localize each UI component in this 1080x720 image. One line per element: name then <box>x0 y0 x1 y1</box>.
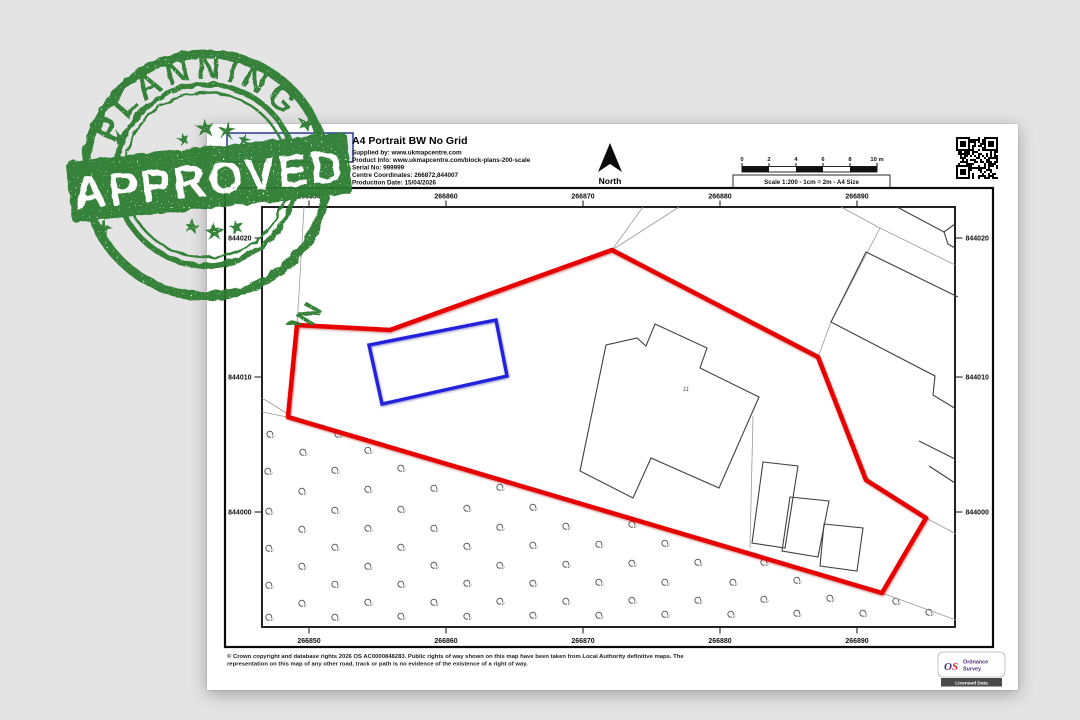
qr-module <box>966 161 968 163</box>
qr-module <box>990 149 992 151</box>
qr-module <box>956 145 958 147</box>
qr-module <box>968 177 970 179</box>
qr-module <box>970 155 972 157</box>
qr-module <box>996 155 998 157</box>
scale-segment <box>742 167 769 173</box>
qr-module <box>960 161 962 163</box>
qr-module <box>956 147 958 149</box>
qr-module <box>988 163 990 165</box>
star-icon <box>217 120 238 140</box>
qr-module <box>972 173 974 175</box>
qr-module <box>974 161 976 163</box>
qr-module <box>996 159 998 161</box>
northing-label: 844000 <box>228 510 251 517</box>
scrub-icon <box>299 600 307 607</box>
northing-label: 844010 <box>966 375 989 382</box>
qr-module <box>968 149 970 151</box>
scrub-icon <box>464 543 472 550</box>
qr-module <box>968 163 970 165</box>
qr-module <box>990 163 992 165</box>
qr-module <box>996 143 998 145</box>
qr-module <box>992 165 994 167</box>
scrub-icon <box>794 610 802 617</box>
qr-module <box>968 153 970 155</box>
qr-module <box>986 153 988 155</box>
scale-tick-label: 8 <box>848 157 852 163</box>
qr-module <box>974 159 976 161</box>
qr-module <box>960 153 962 155</box>
qr-module <box>990 153 992 155</box>
qr-module <box>978 157 980 159</box>
qr-module <box>978 165 980 167</box>
qr-module <box>984 147 986 149</box>
qr-module <box>970 139 972 141</box>
qr-module <box>966 155 968 157</box>
qr-module <box>970 163 972 165</box>
neighbour-building-e-2 <box>929 466 955 483</box>
scrub-icon <box>464 613 472 620</box>
qr-module <box>982 141 984 143</box>
star-icon <box>195 117 216 137</box>
outbuilding-1 <box>752 462 798 548</box>
qr-module <box>964 149 966 151</box>
os-name-line1: Ordnance <box>963 660 988 666</box>
scrub-icon <box>266 545 274 552</box>
qr-module <box>970 141 972 143</box>
qr-module <box>986 149 988 151</box>
qr-module <box>978 177 980 179</box>
scrub-icon <box>860 610 868 617</box>
qr-module <box>980 175 982 177</box>
qr-module <box>988 161 990 163</box>
scrub-icon <box>365 563 373 570</box>
scrub-icon <box>332 544 340 551</box>
qr-module <box>962 159 964 161</box>
scrub-icon <box>497 524 505 531</box>
qr-module <box>972 141 974 143</box>
scale-tick-label: 2 <box>767 157 770 163</box>
qr-module <box>990 137 992 139</box>
qr-module <box>982 139 984 141</box>
easting-label: 266880 <box>708 194 731 201</box>
qr-module <box>988 165 990 167</box>
scrub-icon <box>728 611 736 618</box>
qr-module <box>972 145 974 147</box>
parcel-line-right-2 <box>882 593 956 620</box>
qr-module <box>956 141 958 143</box>
qr-module <box>966 153 968 155</box>
copyright-line-2: representation on this map of any other … <box>227 662 528 668</box>
neighbour-building-e-1 <box>919 441 955 459</box>
scrub-icon <box>332 507 340 514</box>
qr-module <box>974 139 976 141</box>
qr-module <box>964 151 966 153</box>
qr-module <box>968 145 970 147</box>
star-icon <box>227 218 245 235</box>
easting-label: 266860 <box>434 194 457 201</box>
qr-module <box>978 167 980 169</box>
north-label: North <box>599 176 622 186</box>
qr-module <box>972 147 974 149</box>
qr-module <box>996 151 998 153</box>
os-name-line2: Survey <box>963 667 981 673</box>
qr-module <box>968 147 970 149</box>
scale-tick-label: 6 <box>821 157 825 163</box>
header-product-info: Product Info: www.ukmapcentre.com/block-… <box>352 157 531 164</box>
qr-module <box>966 165 968 167</box>
qr-module <box>972 151 974 153</box>
scrub-icon <box>332 614 340 621</box>
qr-module <box>962 161 964 163</box>
qr-module <box>960 137 962 139</box>
stamp-banner: APPROVED <box>66 132 353 222</box>
qr-module <box>984 145 986 147</box>
scrub-icon <box>266 614 274 621</box>
qr-module <box>990 175 992 177</box>
qr-module <box>964 177 966 179</box>
easting-label: 266880 <box>708 638 731 645</box>
qr-module <box>968 141 970 143</box>
qr-module <box>968 173 970 175</box>
qr-module <box>958 149 960 151</box>
qr-module <box>996 161 998 163</box>
qr-module <box>988 175 990 177</box>
scale-segment <box>796 167 823 173</box>
qr-module <box>984 137 986 139</box>
qr-module <box>996 145 998 147</box>
qr-module <box>966 137 968 139</box>
qr-module <box>960 143 962 145</box>
qr-module <box>970 167 972 169</box>
header: A4 Portrait BW No Grid Supplied by: www.… <box>352 135 531 187</box>
scrub-icon <box>365 525 373 532</box>
footer: © Crown copyright and database rights 20… <box>227 652 1005 687</box>
qr-module <box>956 143 958 145</box>
qr-module <box>966 149 968 151</box>
site-boundary-red <box>288 250 926 593</box>
qr-module <box>992 145 994 147</box>
qr-module <box>956 175 958 177</box>
qr-module <box>986 137 988 139</box>
qr-module <box>960 177 962 179</box>
qr-module <box>994 153 996 155</box>
qr-module <box>994 155 996 157</box>
qr-module <box>964 171 966 173</box>
qr-module <box>968 137 970 139</box>
scrub-icon <box>596 541 604 548</box>
fence-line-outbuildings <box>750 416 753 548</box>
qr-module <box>992 141 994 143</box>
qr-module <box>978 145 980 147</box>
scrub-icon <box>464 580 472 587</box>
qr-module <box>962 169 964 171</box>
scrub-icon <box>530 612 538 619</box>
qr-module <box>972 149 974 151</box>
qr-module <box>984 171 986 173</box>
northing-label: 844010 <box>228 375 251 382</box>
qr-module <box>964 157 966 159</box>
qr-module <box>958 165 960 167</box>
qr-module <box>984 167 986 169</box>
ordnance-survey-logo: OS Ordnance Survey Licensed Data <box>938 652 1005 687</box>
qr-module <box>990 151 992 153</box>
copyright-line-1: © Crown copyright and database rights 20… <box>227 653 684 660</box>
qr-module <box>972 139 974 141</box>
scale-bar: Scale 1:200 - 1cm = 2m - A4 Size 0246810… <box>733 157 890 188</box>
qr-module <box>962 149 964 151</box>
scrub-icon <box>761 596 769 603</box>
scrub-icon <box>398 544 406 551</box>
scrub-icon <box>299 526 307 533</box>
qr-module <box>982 161 984 163</box>
easting-label: 266860 <box>434 638 457 645</box>
track-edge-2 <box>612 207 679 250</box>
scrub-icon <box>365 486 373 493</box>
scrub-icon <box>629 560 637 567</box>
qr-module <box>996 177 998 179</box>
scrub-icon <box>299 488 307 495</box>
qr-module <box>994 157 996 159</box>
qr-module <box>968 151 970 153</box>
qr-module <box>990 155 992 157</box>
qr-module <box>980 143 982 145</box>
outbuilding-3 <box>820 524 863 571</box>
qr-module <box>964 137 966 139</box>
qr-module <box>960 155 962 157</box>
qr-module <box>988 149 990 151</box>
qr-module <box>974 167 976 169</box>
qr-module <box>978 137 980 139</box>
qr-module <box>964 153 966 155</box>
north-arrow: North <box>598 143 622 186</box>
qr-module <box>980 161 982 163</box>
easting-label: 266890 <box>845 194 868 201</box>
qr-module <box>978 139 980 141</box>
qr-module <box>964 155 966 157</box>
scale-segment <box>769 167 796 173</box>
os-logo-icon: OS <box>944 661 958 673</box>
qr-module <box>988 173 990 175</box>
qr-module <box>990 161 992 163</box>
scrub-icon <box>497 484 505 491</box>
qr-module <box>956 165 958 167</box>
qr-module <box>996 137 998 139</box>
qr-module <box>978 155 980 157</box>
scrub-icon <box>794 577 802 584</box>
qr-module <box>990 165 992 167</box>
qr-module <box>974 145 976 147</box>
qr-module <box>984 177 986 179</box>
qr-module <box>986 177 988 179</box>
qr-module <box>960 171 962 173</box>
qr-module <box>978 153 980 155</box>
scrub-icon <box>563 598 571 605</box>
scrub-icon <box>497 598 505 605</box>
scrub-icon <box>266 508 274 515</box>
neighbour-building-ne <box>831 252 958 409</box>
qr-module <box>976 139 978 141</box>
scrub-icon <box>530 580 538 587</box>
qr-module <box>958 177 960 179</box>
scrub-icon <box>398 581 406 588</box>
scale-tick-label: 4 <box>794 157 798 163</box>
scrub-icon <box>662 540 670 547</box>
qr-module <box>968 139 970 141</box>
qr-module <box>996 139 998 141</box>
scrub-icon <box>563 523 571 530</box>
qr-module <box>970 165 972 167</box>
qr-module <box>962 157 964 159</box>
qr-module <box>988 137 990 139</box>
qr-module <box>960 151 962 153</box>
scrub-icon <box>662 611 670 618</box>
qr-module <box>996 149 998 151</box>
qr-module <box>962 171 964 173</box>
scene: A4 Portrait BW No Grid Supplied by: www.… <box>0 0 1080 720</box>
qr-module <box>978 169 980 171</box>
scrub-icon <box>596 612 604 619</box>
scrub-icon <box>464 505 472 512</box>
qr-module <box>992 149 994 151</box>
qr-module <box>968 167 970 169</box>
vegetation-layer <box>265 431 934 621</box>
qr-module <box>962 143 964 145</box>
qr-module <box>968 175 970 177</box>
qr-module <box>960 173 962 175</box>
licensed-data-label: Licensed Data <box>955 681 988 687</box>
building-main <box>580 324 759 498</box>
qr-module <box>970 149 972 151</box>
star-icon <box>204 221 224 240</box>
qr-module <box>988 167 990 169</box>
scale-segment <box>823 167 850 173</box>
qr-module <box>986 155 988 157</box>
qr-module <box>958 137 960 139</box>
track-edge-3 <box>262 398 288 414</box>
qr-module <box>980 145 982 147</box>
qr-module <box>992 143 994 145</box>
qr-module <box>978 175 980 177</box>
qr-module <box>956 173 958 175</box>
qr-module <box>958 153 960 155</box>
qr-module <box>980 169 982 171</box>
qr-module <box>988 141 990 143</box>
qr-module <box>996 157 998 159</box>
scrub-icon <box>265 468 273 475</box>
north-arrow-icon <box>598 143 622 172</box>
qr-module <box>982 147 984 149</box>
qr-module <box>972 159 974 161</box>
scrub-icon <box>431 562 439 569</box>
qr-module <box>968 169 970 171</box>
scrub-icon <box>827 595 835 602</box>
proposal-rectangle-blue <box>369 320 507 404</box>
qr-module <box>990 157 992 159</box>
qr-module <box>972 153 974 155</box>
qr-module <box>976 157 978 159</box>
parcel-line-topright <box>841 207 955 265</box>
qr-module <box>964 143 966 145</box>
qr-module <box>984 141 986 143</box>
qr-module <box>988 159 990 161</box>
qr-module <box>964 173 966 175</box>
easting-label: 266870 <box>571 194 594 201</box>
qr-module <box>994 177 996 179</box>
qr-module <box>962 141 964 143</box>
building-number-label: 11 <box>683 387 689 393</box>
qr-module <box>988 143 990 145</box>
scrub-icon <box>398 465 406 472</box>
qr-module <box>970 169 972 171</box>
qr-module <box>988 169 990 171</box>
qr-module <box>974 155 976 157</box>
qr-module <box>974 141 976 143</box>
qr-module <box>978 149 980 151</box>
qr-module <box>960 149 962 151</box>
qr-module <box>964 145 966 147</box>
northing-label: 844020 <box>966 236 989 243</box>
qr-module <box>980 153 982 155</box>
scrub-icon <box>497 562 505 569</box>
qr-module <box>992 173 994 175</box>
scale-segment <box>850 167 877 173</box>
scrub-icon <box>629 597 637 604</box>
qr-module <box>984 149 986 151</box>
scrub-icon <box>662 579 670 586</box>
qr-module <box>956 177 958 179</box>
qr-module <box>996 167 998 169</box>
qr-module <box>982 155 984 157</box>
scrub-icon <box>695 559 703 566</box>
qr-module <box>976 151 978 153</box>
qr-module <box>960 145 962 147</box>
qr-module <box>960 169 962 171</box>
qr-module <box>990 171 992 173</box>
qr-module <box>966 163 968 165</box>
qr-module <box>986 169 988 171</box>
qr-module <box>962 173 964 175</box>
qr-module <box>980 159 982 161</box>
qr-module <box>972 175 974 177</box>
qr-module <box>982 173 984 175</box>
qr-module <box>990 143 992 145</box>
qr-module <box>962 145 964 147</box>
northing-label: 844000 <box>966 510 989 517</box>
qr-module <box>996 141 998 143</box>
qr-module <box>962 153 964 155</box>
qr-module <box>960 141 962 143</box>
easting-label: 266890 <box>845 638 868 645</box>
qr-module <box>992 177 994 179</box>
qr-module <box>990 169 992 171</box>
qr-module <box>996 165 998 167</box>
qr-module <box>986 159 988 161</box>
qr-module <box>966 177 968 179</box>
qr-module <box>990 145 992 147</box>
qr-module <box>956 169 958 171</box>
qr-module <box>966 151 968 153</box>
qr-module <box>984 157 986 159</box>
qr-module <box>972 167 974 169</box>
qr-module <box>994 151 996 153</box>
scrub-icon <box>530 504 538 511</box>
qr-module <box>962 165 964 167</box>
qr-module <box>960 165 962 167</box>
scrub-icon <box>398 613 406 620</box>
scrub-icon <box>530 542 538 549</box>
qr-module <box>980 167 982 169</box>
qr-module <box>984 143 986 145</box>
